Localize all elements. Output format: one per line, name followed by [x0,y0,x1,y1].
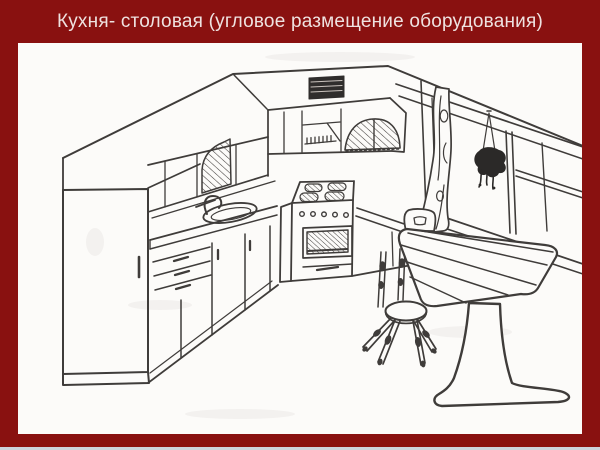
oven-door [303,226,352,258]
table-pedestal [434,303,569,406]
presentation-slide: Кухня- столовая (угловое размещение обор… [0,0,600,450]
window-mullion [506,131,547,234]
arched-glass-door-left [202,139,231,193]
stool [361,302,437,368]
stove-burners [300,183,346,202]
hood-niche [303,122,340,144]
back-wall-cabinets [268,98,406,176]
stove-with-oven [280,181,354,282]
ventilation-grille [309,76,344,99]
dining-table [399,229,557,306]
arched-glass-door-back [345,119,400,151]
base-cabinets-drawers [153,226,270,358]
kitchen-illustration [0,0,600,450]
stove-knobs [300,212,349,218]
tall-cabinet [63,189,149,385]
